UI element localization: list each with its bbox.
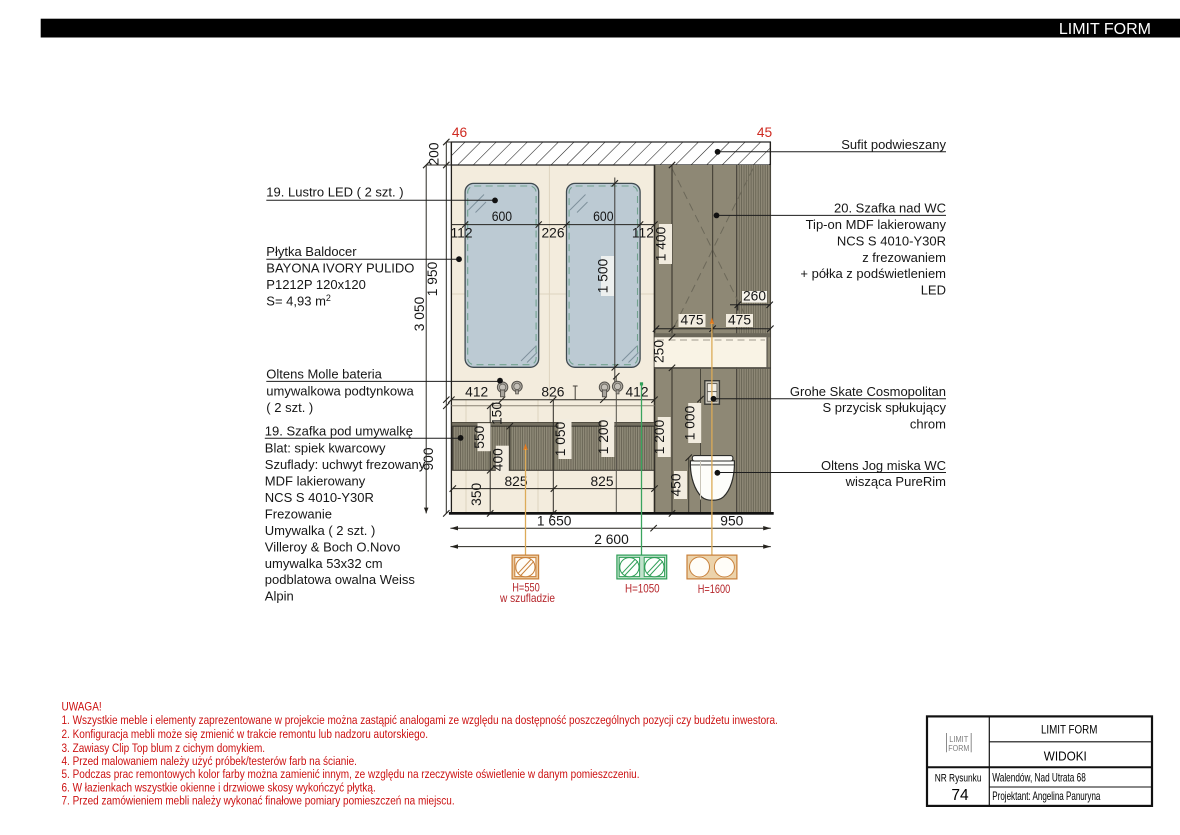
svg-text:112: 112 <box>632 226 654 241</box>
svg-text:WIDOKI: WIDOKI <box>1044 748 1087 763</box>
svg-text:Tip-on MDF lakierowany: Tip-on MDF lakierowany <box>806 217 947 232</box>
svg-text:1 500: 1 500 <box>596 258 611 293</box>
svg-text:400: 400 <box>490 448 505 471</box>
svg-text:UWAGA!: UWAGA! <box>62 701 102 714</box>
svg-text:7. Przed zamówieniem mebli nal: 7. Przed zamówieniem mebli należy wykona… <box>62 795 455 808</box>
svg-text:825: 825 <box>590 474 613 489</box>
svg-text:4. Przed malowaniem należy uży: 4. Przed malowaniem należy użyć próbek/t… <box>62 755 357 768</box>
svg-text:1 400: 1 400 <box>654 226 669 261</box>
svg-text:6. W łazienkach wszystkie okie: 6. W łazienkach wszystkie okienne i drzw… <box>62 782 376 795</box>
svg-text:2 600: 2 600 <box>594 532 629 547</box>
svg-text:46: 46 <box>452 125 468 140</box>
svg-text:Płytka Baldocer: Płytka Baldocer <box>266 244 357 259</box>
svg-text:Sufit podwieszany: Sufit podwieszany <box>841 137 946 152</box>
svg-text:H=1600: H=1600 <box>698 583 731 596</box>
svg-text:1 950: 1 950 <box>425 261 440 296</box>
svg-text:FORM: FORM <box>948 743 969 753</box>
svg-text:BAYONA IVORY PULIDO: BAYONA IVORY PULIDO <box>266 261 414 276</box>
svg-text:19. Szafka pod umywalkę: 19. Szafka pod umywalkę <box>265 423 413 438</box>
svg-text:475: 475 <box>728 313 751 328</box>
svg-text:Walendów, Nad Utrata 68: Walendów, Nad Utrata 68 <box>992 770 1086 784</box>
svg-text:3. Zawiasy Clip Top blum z cic: 3. Zawiasy Clip Top blum z cichym domyki… <box>62 742 266 755</box>
svg-text:826: 826 <box>541 385 564 400</box>
svg-text:1 200: 1 200 <box>652 419 667 454</box>
svg-text:1 000: 1 000 <box>683 405 698 440</box>
svg-text:S= 4,93 m2: S= 4,93 m2 <box>266 293 331 309</box>
svg-text:Oltens Molle bateria: Oltens Molle bateria <box>266 367 382 382</box>
svg-text:600: 600 <box>492 209 513 224</box>
svg-text:350: 350 <box>469 482 484 505</box>
svg-text:S przycisk spłukujący: S przycisk spłukujący <box>822 400 946 415</box>
svg-text:825: 825 <box>504 474 527 489</box>
svg-text:H=1050: H=1050 <box>625 582 660 595</box>
svg-text:2. Konfiguracja mebli może się: 2. Konfiguracja mebli może się zmienić w… <box>62 728 428 741</box>
svg-text:w szufladzie: w szufladzie <box>499 592 555 605</box>
svg-text:475: 475 <box>680 313 703 328</box>
svg-text:950: 950 <box>720 513 743 528</box>
svg-text:412: 412 <box>625 385 648 400</box>
svg-text:Blat: spiek kwarcowy: Blat: spiek kwarcowy <box>265 441 386 456</box>
svg-text:250: 250 <box>652 340 667 363</box>
svg-text:260: 260 <box>743 288 766 303</box>
svg-text:P1212P 120x120: P1212P 120x120 <box>266 277 366 292</box>
svg-text:20. Szafka nad WC: 20. Szafka nad WC <box>834 201 946 216</box>
svg-text:wisząca PureRim: wisząca PureRim <box>845 474 946 489</box>
svg-text:226: 226 <box>541 226 564 241</box>
svg-text:550: 550 <box>472 425 487 448</box>
svg-text:150: 150 <box>490 402 505 425</box>
svg-text:( 2 szt. ): ( 2 szt. ) <box>266 400 313 415</box>
svg-text:74: 74 <box>951 787 969 804</box>
svg-text:5. Podczas prac remontowych ko: 5. Podczas prac remontowych kolor farby … <box>62 768 640 781</box>
svg-text:NCS S 4010-Y30R: NCS S 4010-Y30R <box>265 490 374 505</box>
svg-text:LIMIT FORM: LIMIT FORM <box>1041 722 1098 736</box>
svg-text:3 050: 3 050 <box>412 296 427 331</box>
svg-text:Alpin: Alpin <box>265 589 294 604</box>
svg-text:1 050: 1 050 <box>553 421 568 456</box>
svg-text:MDF lakierowany: MDF lakierowany <box>265 474 366 489</box>
svg-text:Umywalka ( 2 szt. ): Umywalka ( 2 szt. ) <box>265 523 376 538</box>
svg-text:450: 450 <box>669 473 684 496</box>
svg-text:LED: LED <box>921 283 946 298</box>
svg-text:Projektant: Angelina Panuryna: Projektant: Angelina Panuryna <box>992 789 1100 803</box>
svg-text:z frezowaniem: z frezowaniem <box>862 250 946 265</box>
svg-text:Frezowanie: Frezowanie <box>265 506 332 521</box>
svg-text:600: 600 <box>593 209 614 224</box>
svg-text:19. Lustro LED ( 2 szt. ): 19. Lustro LED ( 2 szt. ) <box>266 184 403 199</box>
svg-text:Szuflady: uchwyt frezowany: Szuflady: uchwyt frezowany <box>265 457 426 472</box>
svg-text:Grohe Skate Cosmopolitan: Grohe Skate Cosmopolitan <box>790 384 946 399</box>
svg-text:podblatowa owalna Weiss: podblatowa owalna Weiss <box>265 572 416 587</box>
svg-text:1 200: 1 200 <box>596 419 611 454</box>
svg-text:412: 412 <box>465 385 488 400</box>
svg-text:chrom: chrom <box>910 417 946 432</box>
svg-text:umywalkowa podtynkowa: umywalkowa podtynkowa <box>266 383 414 398</box>
svg-text:Oltens Jog miska WC: Oltens Jog miska WC <box>821 458 946 473</box>
svg-text:1. Wszystkie meble i elementy: 1. Wszystkie meble i elementy zaprezento… <box>62 714 778 727</box>
svg-text:NR Rysunku: NR Rysunku <box>935 772 982 784</box>
svg-text:1 650: 1 650 <box>537 513 572 528</box>
svg-text:45: 45 <box>757 125 773 140</box>
svg-text:NCS S 4010-Y30R: NCS S 4010-Y30R <box>837 233 946 248</box>
svg-text:112: 112 <box>451 226 473 241</box>
svg-text:LIMIT FORM: LIMIT FORM <box>1059 21 1151 38</box>
svg-text:+ półka z podświetleniem: + półka z podświetleniem <box>800 266 946 281</box>
svg-text:umywalka 53x32 cm: umywalka 53x32 cm <box>265 556 383 571</box>
svg-text:Villeroy & Boch O.Novo: Villeroy & Boch O.Novo <box>265 539 401 554</box>
